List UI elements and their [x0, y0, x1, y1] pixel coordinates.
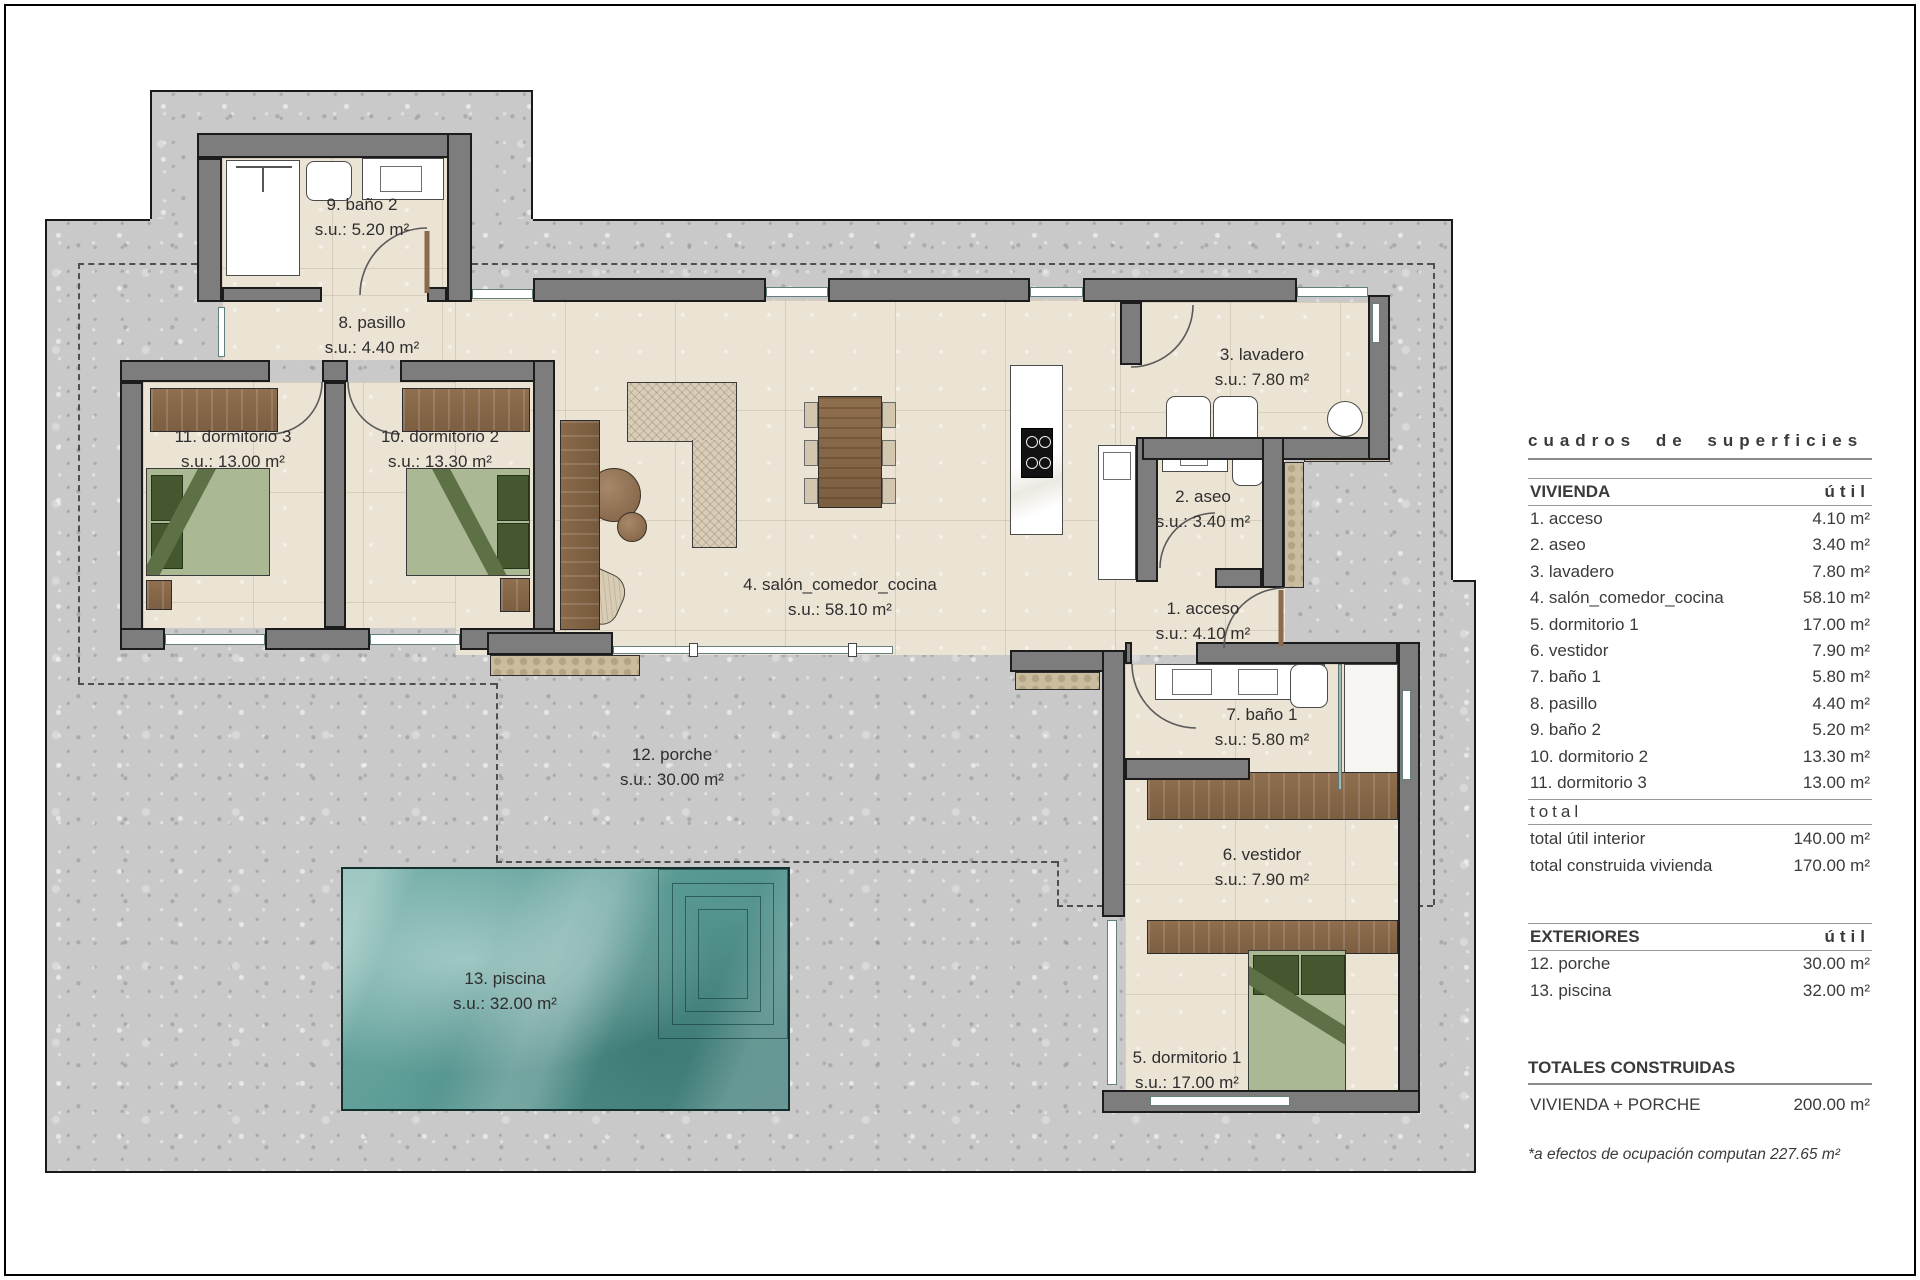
wall-segment	[324, 382, 346, 628]
exteriores-header: EXTERIORES	[1530, 927, 1640, 947]
pouf	[617, 512, 647, 542]
chair	[804, 478, 818, 504]
wall-segment	[427, 287, 447, 302]
plot-terrain-east-strip	[1453, 580, 1476, 1173]
setback-line	[496, 861, 1057, 863]
table-row: 6. vestidor7.90 m²	[1528, 638, 1872, 664]
dining-table	[818, 396, 882, 508]
wall-segment	[222, 287, 322, 302]
setback-line	[1433, 263, 1435, 905]
window	[1150, 1096, 1290, 1106]
chair	[804, 402, 818, 428]
setback-line	[496, 683, 498, 861]
setback-line	[78, 263, 80, 683]
room-label-aseo: 2. aseos.u.: 3.40 m²	[1156, 484, 1250, 534]
door-handle-icon	[689, 643, 698, 657]
plot-outline	[45, 219, 150, 221]
window	[1107, 920, 1117, 1085]
vivienda-header-row: VIVIENDA útil	[1528, 478, 1872, 506]
paving-porche-west	[490, 655, 640, 676]
sofa	[627, 382, 737, 442]
wall-segment	[533, 360, 555, 650]
room-label-lavadero: 3. lavaderos.u.: 7.80 m²	[1215, 342, 1309, 392]
sink-basin	[1172, 669, 1212, 695]
pool-step	[698, 909, 748, 999]
window	[218, 307, 225, 357]
wall-segment	[533, 278, 766, 302]
paving-entrance-side	[1284, 462, 1304, 588]
table-row: 7. baño 15.80 m²	[1528, 664, 1872, 690]
wall-segment	[1102, 650, 1125, 917]
window	[472, 289, 533, 299]
pool-steps	[658, 869, 788, 1039]
plot-outline	[45, 1171, 1476, 1173]
table-row: 9. baño 25.20 m²	[1528, 717, 1872, 743]
burner-icon	[1026, 436, 1038, 448]
plot-outline	[1451, 219, 1453, 580]
table-row: 13. piscina32.00 m²	[1528, 978, 1872, 1004]
table-title: cuadros de superficies	[1528, 431, 1872, 451]
pillow	[497, 523, 529, 569]
wall-segment	[120, 360, 270, 382]
burner-icon	[1039, 457, 1051, 469]
table-row: 8. pasillo4.40 m²	[1528, 691, 1872, 717]
chair	[804, 440, 818, 466]
plot-outline	[150, 90, 533, 92]
wall-segment	[487, 632, 613, 655]
wall-segment	[828, 278, 1030, 302]
cooktop	[1021, 428, 1053, 478]
sink-basin	[1238, 669, 1278, 695]
tv-sideboard	[560, 420, 600, 630]
plot-outline	[150, 90, 152, 219]
pillow	[1301, 955, 1345, 995]
wall-segment	[1083, 278, 1297, 302]
pillow	[497, 475, 529, 521]
totales-header: TOTALES CONSTRUIDAS	[1528, 1058, 1872, 1085]
plot-outline	[1474, 580, 1476, 1173]
room-label-piscina: 13. piscinas.u.: 32.00 m²	[453, 966, 557, 1016]
wall-segment	[265, 628, 370, 650]
window	[370, 634, 460, 645]
bed-dormitorio2	[406, 468, 530, 576]
chair	[882, 402, 896, 428]
divider	[1528, 458, 1872, 460]
table-row-total: total útil interior140.00 m²	[1528, 825, 1872, 852]
window	[766, 287, 828, 297]
plot-outline	[45, 219, 47, 1173]
bed-dormitorio1	[1248, 950, 1346, 1102]
window	[1030, 287, 1083, 297]
wall-segment	[322, 360, 348, 382]
room-label-salon: 4. salón_comedor_cocinas.u.: 58.10 m²	[743, 572, 937, 622]
room-label-bano2: 9. baño 2s.u.: 5.20 m²	[315, 192, 409, 242]
table-row: 10. dormitorio 213.30 m²	[1528, 744, 1872, 770]
wall-segment	[120, 382, 143, 650]
wardrobe-vestidor	[1147, 920, 1398, 954]
wall-segment	[1215, 568, 1262, 588]
setback-line	[472, 263, 1433, 265]
bed-dormitorio3	[146, 468, 270, 576]
total-heading: total	[1528, 799, 1872, 825]
room-label-dormitorio1: 5. dormitorio 1s.u.: 17.00 m²	[1133, 1045, 1242, 1095]
window	[1372, 303, 1380, 343]
side-table	[146, 580, 172, 610]
room-label-vestidor: 6. vestidors.u.: 7.90 m²	[1215, 842, 1309, 892]
plot-outline	[533, 219, 1453, 221]
plot-outline	[1453, 580, 1476, 582]
wall-segment	[1120, 302, 1142, 365]
table-row: 3. lavadero7.80 m²	[1528, 559, 1872, 585]
wall-segment	[447, 133, 472, 302]
shower-rail-icon	[262, 166, 264, 192]
window	[1297, 287, 1368, 297]
setback-line	[78, 683, 496, 685]
setback-line	[78, 263, 197, 265]
util-header: útil	[1825, 482, 1871, 502]
sink-basin	[380, 166, 422, 192]
wall-segment	[1262, 437, 1284, 588]
chair	[882, 440, 896, 466]
table-row-total: VIVIENDA + PORCHE200.00 m²	[1528, 1091, 1872, 1118]
floorplan-sheet: { "plan": { "rooms": [ {"name": "1. acce…	[0, 0, 1920, 1280]
shower-rail-icon	[236, 166, 292, 168]
room-label-dormitorio2: 10. dormitorio 2s.u.: 13.30 m²	[381, 424, 499, 474]
water-heater	[1327, 401, 1363, 437]
wall-segment	[1125, 758, 1250, 780]
room-label-bano1: 7. baño 1s.u.: 5.80 m²	[1215, 702, 1309, 752]
room-label-dormitorio3: 11. dormitorio 3s.u.: 13.00 m²	[175, 424, 292, 474]
swimming-pool	[341, 867, 790, 1111]
table-row: 12. porche30.00 m²	[1528, 951, 1872, 977]
wall-segment	[197, 133, 472, 158]
door-handle-icon	[848, 643, 857, 657]
burner-icon	[1039, 436, 1051, 448]
plot-outline	[531, 90, 533, 219]
occupancy-note: *a efectos de ocupación computan 227.65 …	[1528, 1146, 1872, 1164]
desk-dormitorio2	[500, 578, 530, 612]
sofa-chaise	[692, 440, 737, 548]
table-row: 1. acceso4.10 m²	[1528, 506, 1872, 532]
shower-glass	[1338, 664, 1342, 790]
window	[1402, 690, 1411, 780]
table-row: 5. dormitorio 117.00 m²	[1528, 612, 1872, 638]
setback-line	[1057, 861, 1059, 905]
wall-segment	[400, 360, 555, 382]
wall-segment	[197, 158, 222, 302]
window	[165, 634, 265, 645]
burner-icon	[1026, 457, 1038, 469]
kitchen-sink	[1103, 452, 1131, 480]
surface-table: cuadros de superficies VIVIENDA útil 1. …	[1528, 431, 1872, 1164]
table-row: 4. salón_comedor_cocina58.10 m²	[1528, 585, 1872, 611]
table-row-total: total construida vivienda170.00 m²	[1528, 852, 1872, 879]
room-label-porche: 12. porches.u.: 30.00 m²	[620, 742, 724, 792]
table-row: 2. aseo3.40 m²	[1528, 532, 1872, 558]
vivienda-header: VIVIENDA	[1530, 482, 1610, 502]
paving-porche-east	[1015, 672, 1100, 690]
util-header: útil	[1825, 927, 1871, 947]
table-row: 11. dormitorio 313.00 m²	[1528, 770, 1872, 796]
exteriores-header-row: EXTERIORES útil	[1528, 923, 1872, 951]
wall-segment	[120, 628, 165, 650]
chair	[882, 478, 896, 504]
room-label-acceso: 1. accesos.u.: 4.10 m²	[1156, 596, 1250, 646]
wall-segment	[1125, 642, 1132, 664]
room-label-pasillo: 8. pasillos.u.: 4.40 m²	[325, 310, 419, 360]
